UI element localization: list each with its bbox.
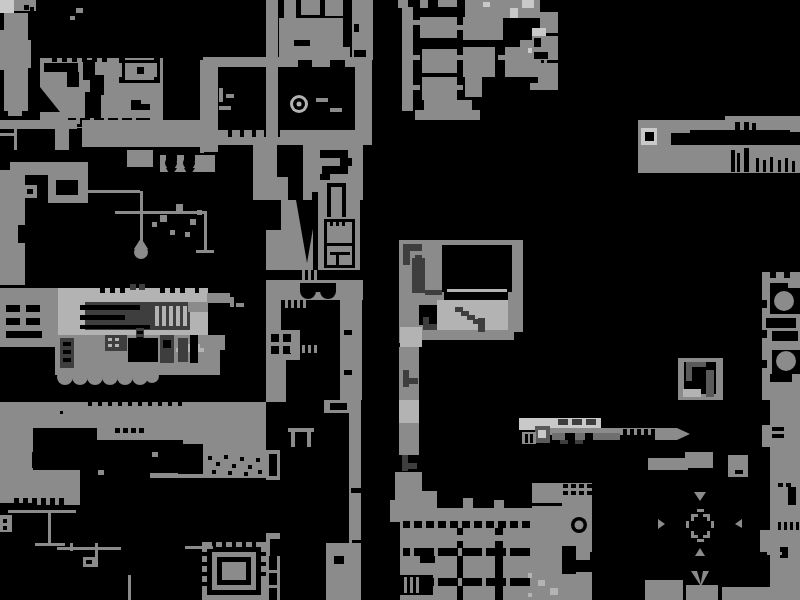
game-map-canvas[interactable] <box>0 0 800 600</box>
game-map-screen <box>0 0 800 600</box>
